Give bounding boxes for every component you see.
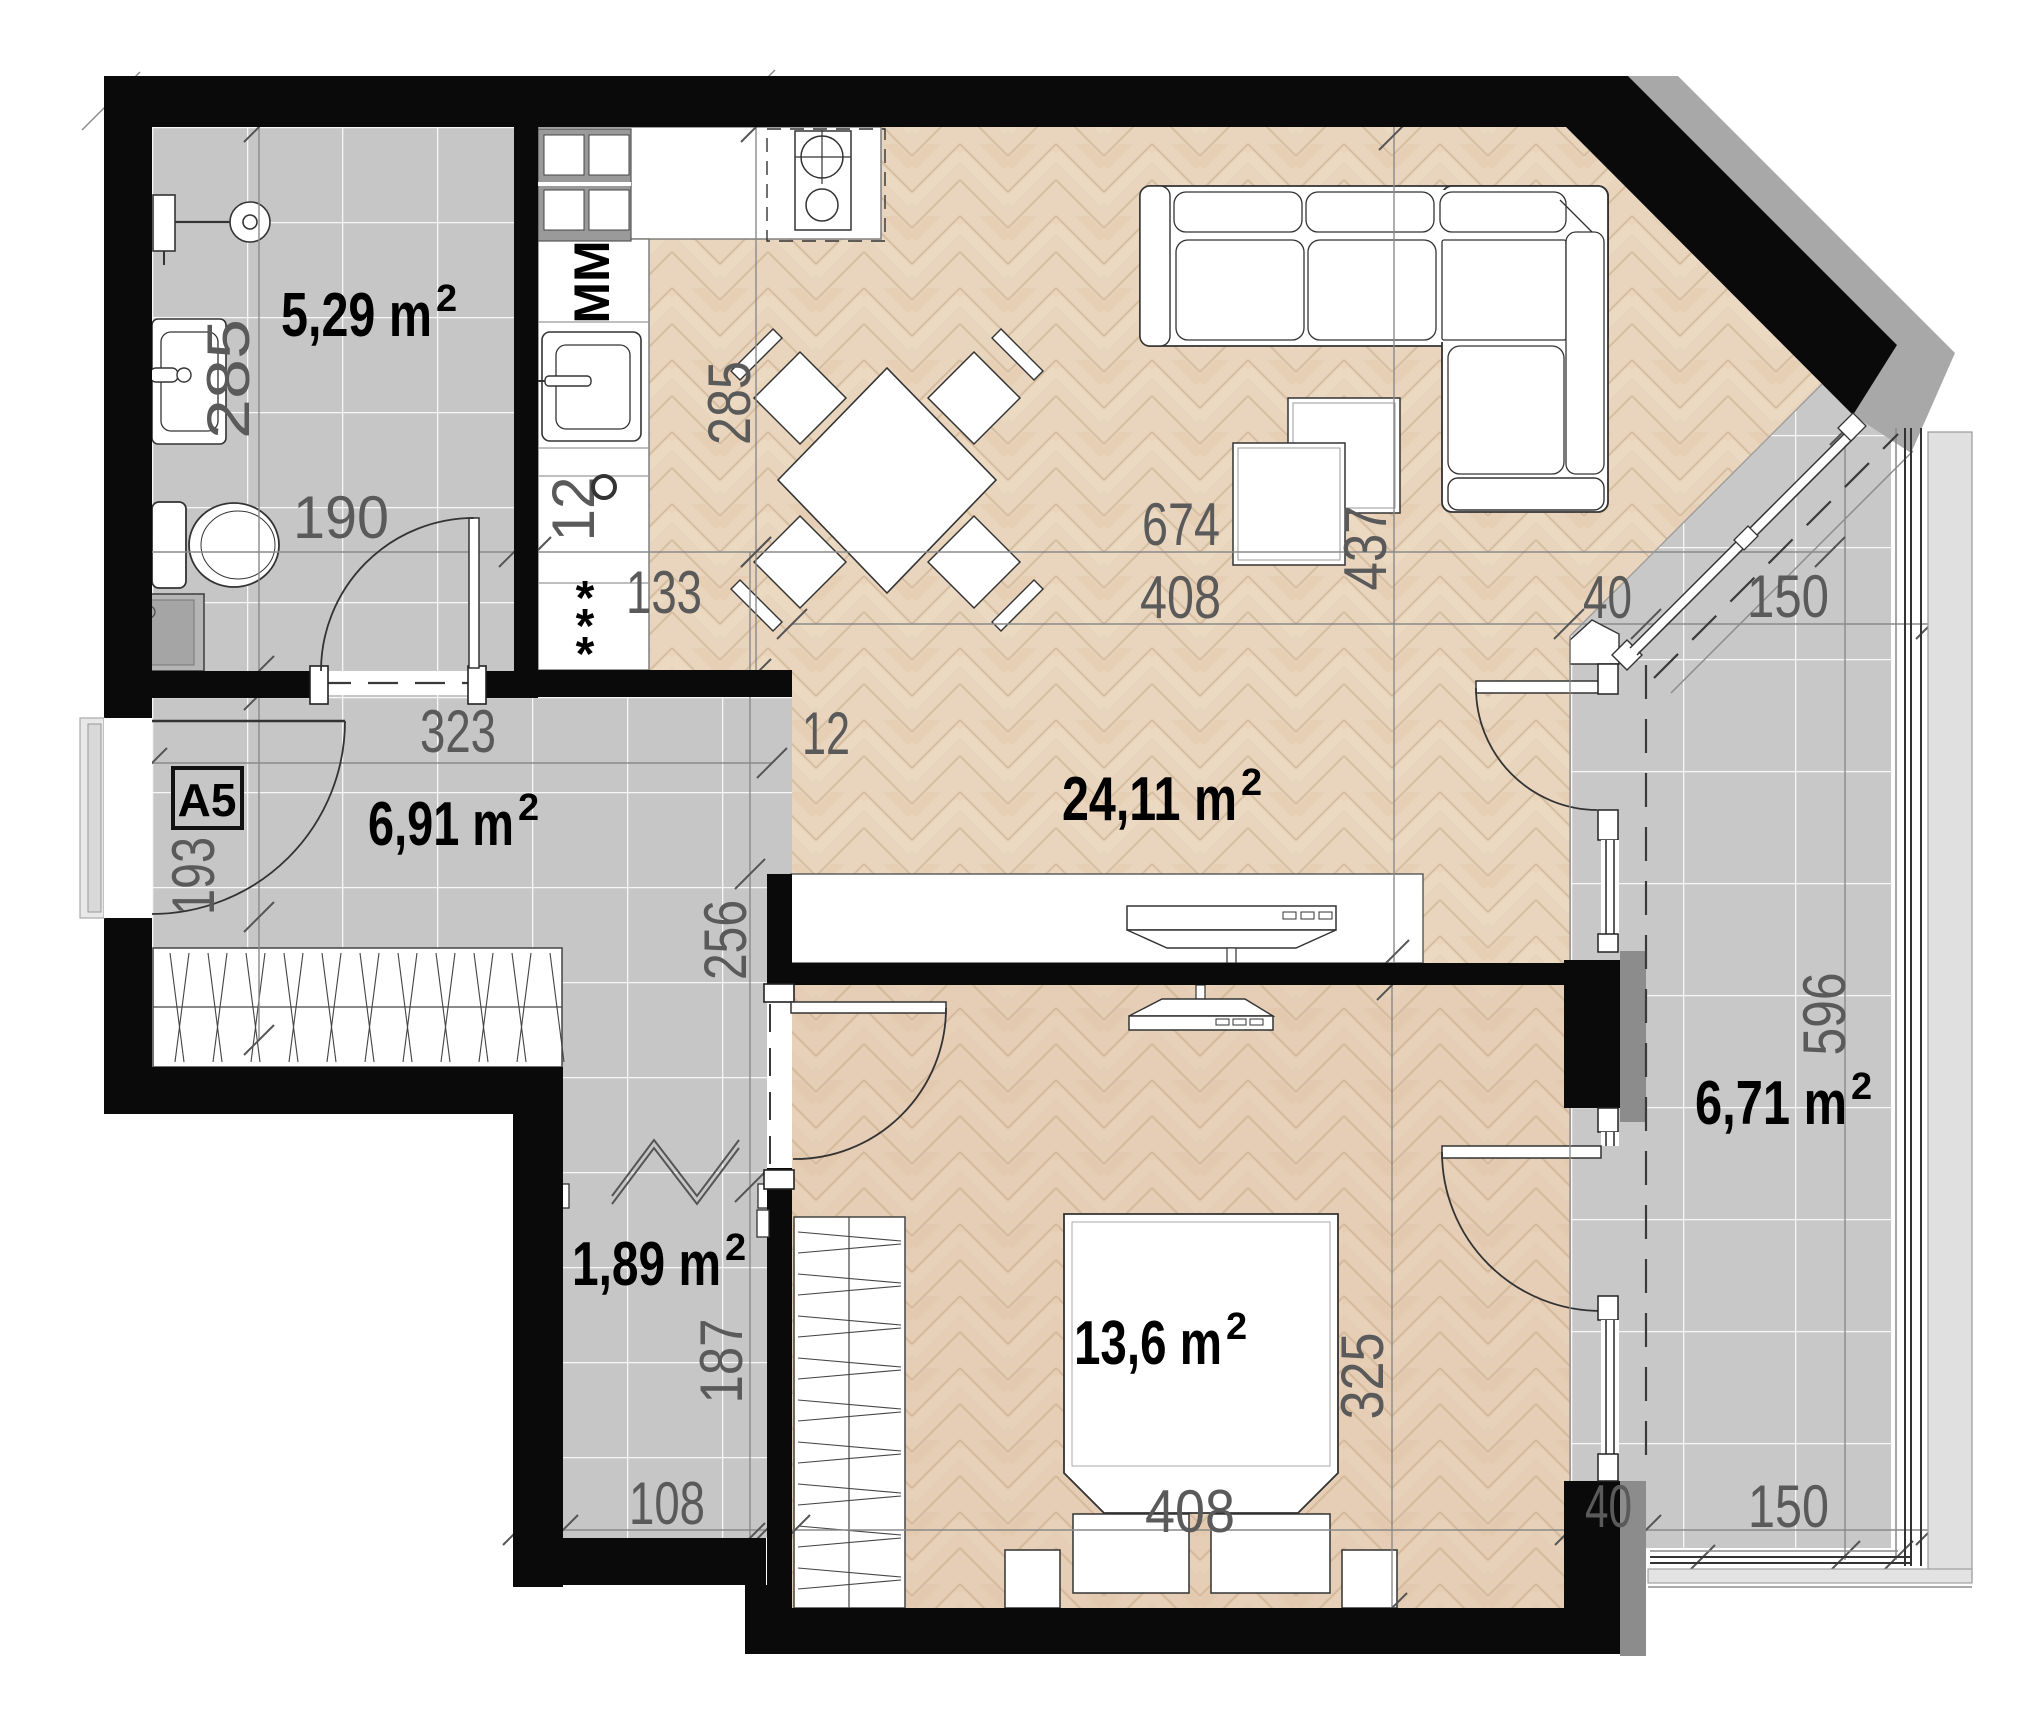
svg-text:MM: MM	[564, 240, 620, 323]
svg-text:150: 150	[1747, 563, 1829, 630]
svg-text:6,71 m: 6,71 m	[1695, 1069, 1847, 1138]
svg-text:190: 190	[293, 484, 389, 551]
svg-text:408: 408	[1145, 1478, 1235, 1545]
svg-text:674: 674	[1142, 491, 1220, 558]
svg-text:187: 187	[688, 1319, 755, 1404]
svg-text:40: 40	[1585, 1473, 1632, 1540]
svg-text:13,6 m: 13,6 m	[1074, 1309, 1222, 1378]
svg-text:6,91 m: 6,91 m	[368, 790, 514, 859]
svg-text:323: 323	[420, 698, 496, 765]
svg-text:*: *	[576, 628, 595, 681]
svg-text:285: 285	[195, 319, 262, 439]
svg-text:12: 12	[802, 700, 850, 767]
svg-text:2: 2	[1226, 1306, 1247, 1348]
svg-text:325: 325	[1329, 1333, 1396, 1420]
svg-text:2: 2	[1241, 762, 1262, 804]
svg-text:A5: A5	[178, 774, 237, 826]
svg-text:256: 256	[692, 900, 759, 980]
svg-text:2: 2	[518, 787, 539, 829]
svg-text:2: 2	[1851, 1066, 1872, 1108]
svg-text:150: 150	[1748, 1473, 1829, 1540]
svg-text:408: 408	[1140, 564, 1221, 631]
svg-text:24,11 m: 24,11 m	[1062, 765, 1237, 834]
svg-text:133: 133	[626, 559, 702, 626]
svg-text:1,89 m: 1,89 m	[572, 1230, 721, 1299]
svg-text:596: 596	[1791, 973, 1858, 1056]
svg-text:108: 108	[629, 1470, 705, 1537]
svg-text:285: 285	[696, 361, 763, 445]
svg-text:437: 437	[1332, 506, 1399, 591]
svg-text:2: 2	[436, 278, 457, 320]
svg-text:5,29 m: 5,29 m	[281, 281, 432, 350]
svg-text:40: 40	[1583, 564, 1632, 631]
svg-text:193: 193	[160, 837, 227, 915]
svg-text:12: 12	[540, 477, 607, 542]
svg-text:2: 2	[725, 1227, 746, 1269]
